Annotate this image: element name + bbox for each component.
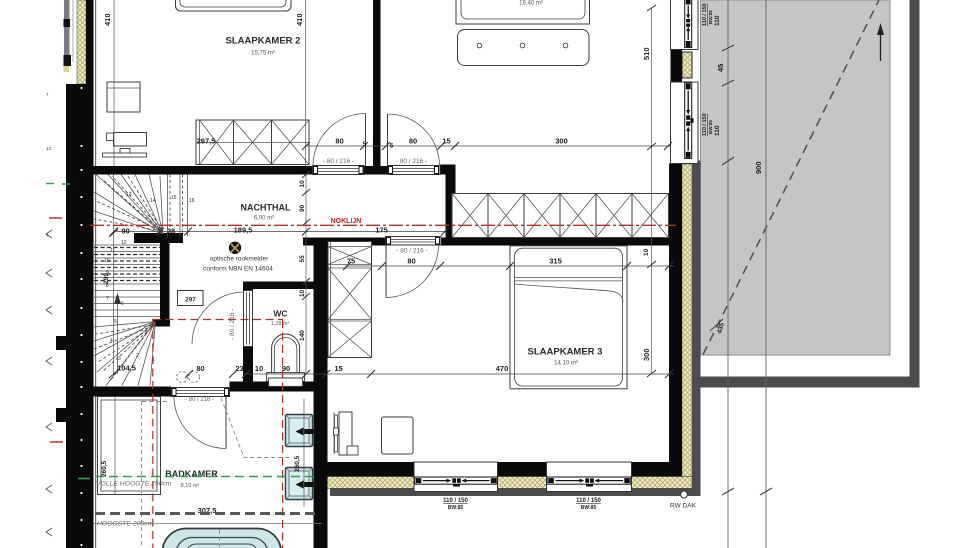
svg-text:19,40 m²: 19,40 m² (519, 1, 543, 7)
svg-text:110: 110 (714, 15, 721, 26)
svg-text:conform NBN EN 14604: conform NBN EN 14604 (203, 266, 273, 273)
svg-text:470: 470 (496, 364, 509, 373)
svg-text:510: 510 (642, 47, 651, 60)
svg-text:90: 90 (121, 227, 129, 236)
svg-text:10: 10 (299, 289, 306, 297)
svg-text:75: 75 (347, 257, 355, 266)
svg-text:80: 80 (409, 137, 417, 146)
svg-text:299: 299 (103, 273, 110, 284)
svg-text:260,5: 260,5 (101, 460, 108, 477)
svg-text:110: 110 (714, 125, 721, 136)
svg-text:5: 5 (363, 141, 367, 148)
svg-text:10: 10 (643, 248, 650, 256)
svg-text:- 80 / 216 -: - 80 / 216 - (396, 158, 427, 165)
svg-text:80: 80 (196, 364, 204, 373)
svg-text:10: 10 (299, 180, 306, 188)
svg-text:297: 297 (185, 297, 196, 304)
svg-text:110 / 150: 110 / 150 (443, 498, 468, 504)
svg-text:189,5: 189,5 (234, 226, 253, 235)
svg-text:WC: WC (273, 309, 287, 319)
svg-text:7: 7 (106, 296, 109, 302)
svg-text:VOLLE HOOGTE 250cm: VOLLE HOOGTE 250cm (96, 481, 172, 488)
svg-text:15: 15 (334, 364, 342, 373)
svg-text:410: 410 (295, 13, 304, 26)
svg-text:90: 90 (299, 204, 306, 212)
svg-text:175: 175 (375, 226, 388, 235)
svg-text:- 80 / 216 -: - 80 / 216 - (323, 158, 354, 165)
svg-text:11: 11 (110, 248, 115, 254)
svg-text:14: 14 (150, 198, 156, 204)
svg-text:410: 410 (103, 13, 112, 26)
svg-text:300: 300 (555, 137, 568, 146)
svg-text:1,28 m²: 1,28 m² (271, 321, 290, 327)
svg-text:5: 5 (390, 143, 394, 150)
svg-text:NACHTHAL: NACHTHAL (241, 203, 291, 213)
svg-text:4: 4 (110, 338, 113, 344)
svg-text:BW:85: BW:85 (581, 505, 597, 511)
svg-text:260,5: 260,5 (294, 455, 301, 472)
svg-text:80: 80 (335, 137, 343, 146)
svg-text:13: 13 (46, 146, 52, 151)
svg-text:15,75 m²: 15,75 m² (251, 51, 275, 57)
svg-text:2: 2 (136, 353, 139, 359)
svg-text:10: 10 (255, 364, 263, 373)
svg-text:- 80 / 216 -: - 80 / 216 - (229, 309, 236, 340)
svg-text:5: 5 (114, 319, 117, 325)
svg-text:104,5: 104,5 (117, 364, 136, 373)
svg-text:13: 13 (126, 192, 132, 198)
svg-text:3: 3 (118, 356, 121, 362)
svg-text:RW DAK: RW DAK (670, 503, 697, 510)
svg-text:SLAAPKAMER 3: SLAAPKAMER 3 (528, 347, 603, 358)
svg-text:14,10 m²: 14,10 m² (554, 361, 578, 367)
svg-text:55: 55 (299, 255, 306, 263)
svg-text:10: 10 (104, 258, 110, 264)
svg-text:110 / 150: 110 / 150 (576, 498, 601, 504)
svg-text:6: 6 (121, 301, 124, 307)
svg-text:16: 16 (189, 198, 195, 204)
svg-text:80: 80 (407, 257, 415, 266)
svg-text:300: 300 (642, 348, 651, 361)
svg-text:23: 23 (235, 364, 243, 373)
svg-text:12: 12 (121, 240, 127, 246)
svg-text:BW:85: BW:85 (448, 505, 464, 511)
svg-text:- 80 / 216 -: - 80 / 216 - (396, 248, 427, 255)
svg-text:140: 140 (299, 330, 306, 341)
svg-text:BADKAMER: BADKAMER (165, 469, 218, 479)
svg-text:15: 15 (171, 195, 177, 201)
svg-text:BW:85: BW:85 (708, 10, 713, 24)
svg-text:6,00 m²: 6,00 m² (254, 216, 274, 222)
svg-text:optische rookmelder: optische rookmelder (210, 256, 269, 263)
svg-text:HOOGSTE 200cm: HOOGSTE 200cm (97, 521, 154, 528)
svg-text:SLAAPKAMER 2: SLAAPKAMER 2 (226, 36, 301, 47)
svg-text:15: 15 (442, 137, 450, 146)
svg-text:NOKLIJN: NOKLIJN (331, 218, 362, 225)
svg-text:- 80 / 216 -: - 80 / 216 - (185, 397, 214, 403)
svg-text:8,10 m²: 8,10 m² (181, 483, 200, 489)
svg-text:900: 900 (754, 161, 763, 174)
svg-text:BW:85: BW:85 (708, 120, 713, 134)
svg-text:297,5: 297,5 (197, 137, 216, 146)
svg-text:28: 28 (167, 227, 175, 236)
svg-text:315: 315 (549, 257, 562, 266)
svg-text:45: 45 (716, 64, 725, 72)
